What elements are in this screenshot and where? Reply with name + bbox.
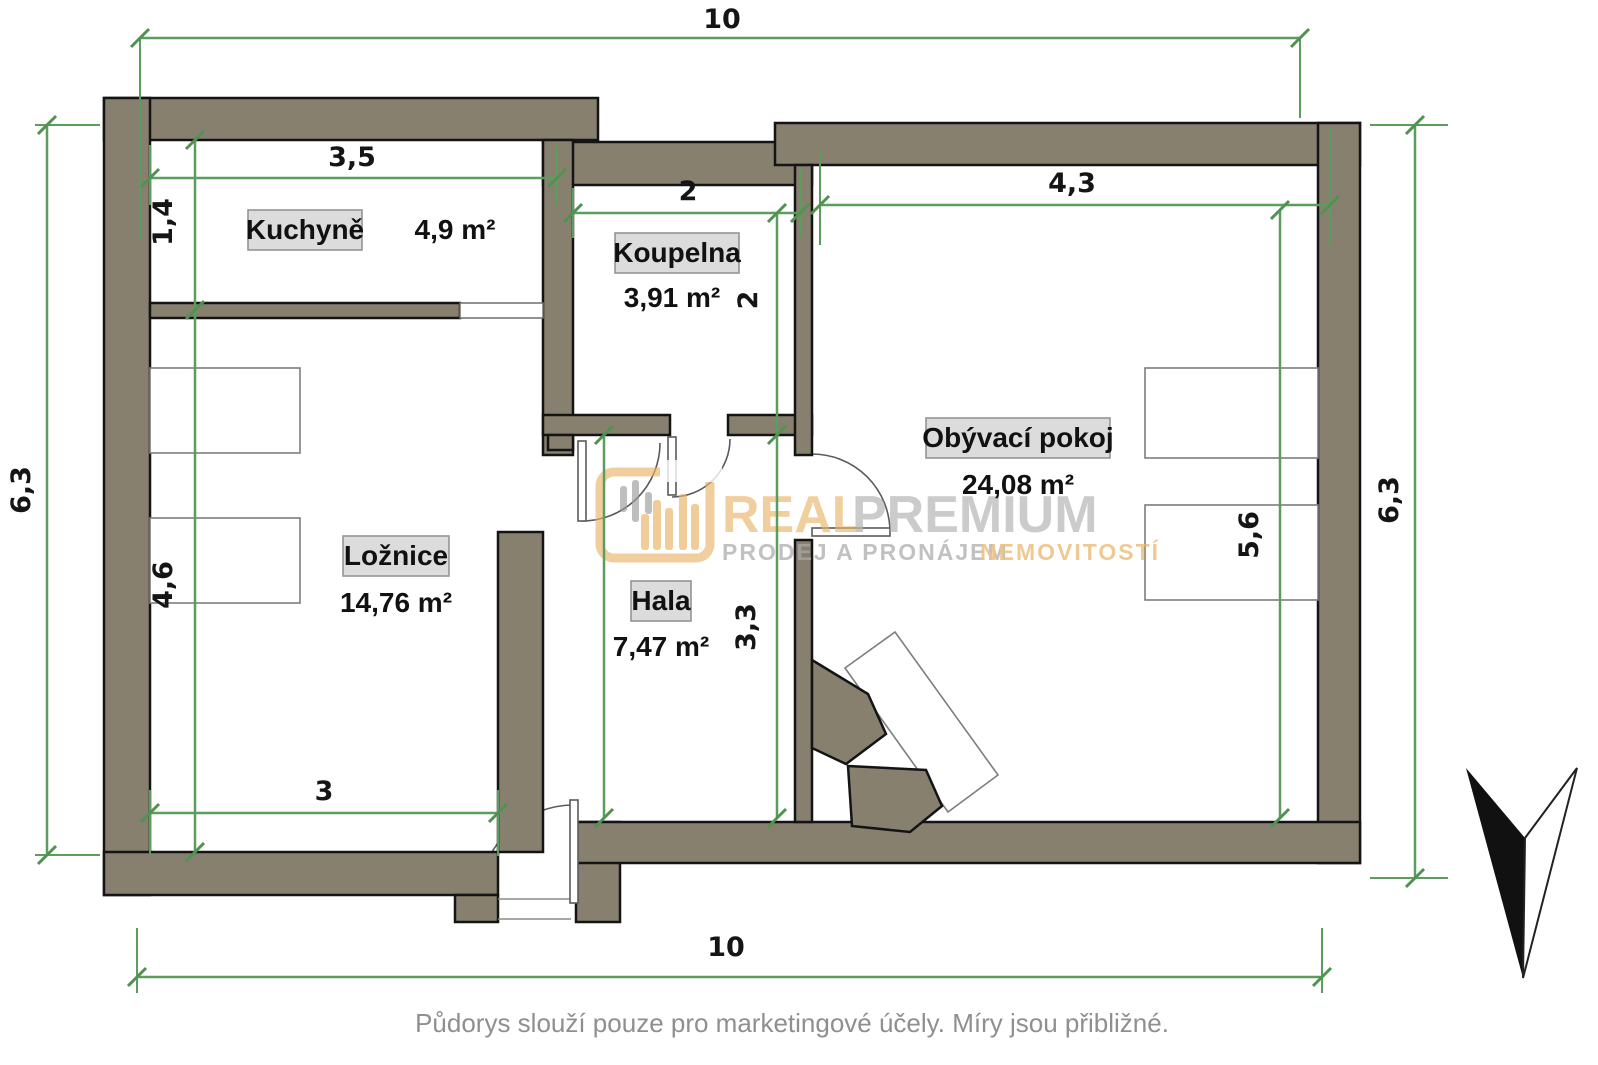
kitchen-pass-through-window (460, 303, 543, 318)
wall-top-left (104, 98, 598, 140)
wall-left (104, 98, 150, 895)
room-name-bathroom: Koupelna (613, 237, 741, 268)
logo-brand-real: REAL (722, 486, 864, 544)
dim-bathroom-depth: 2 (733, 291, 764, 310)
wall-top-middle (543, 142, 812, 185)
living-room-furniture-2 (1145, 505, 1318, 600)
room-name-bedroom: Ložnice (344, 540, 448, 571)
logo-tagline-left: PRODEJ A PRONÁJEM (722, 538, 1009, 565)
dim-bottom-width: 10 (707, 932, 745, 963)
north-arrow-dark-half (1466, 768, 1525, 978)
living-room-furniture-1 (1145, 368, 1318, 458)
floorplan-drawing: REAL PREMIUM PRODEJ A PRONÁJEM NEMOVITOS… (0, 0, 1598, 1065)
wall-bedroom-hall-stub (548, 435, 573, 450)
dim-bedroom-width: 3 (315, 776, 334, 807)
dim-kitchen-depth: 1,4 (148, 198, 179, 246)
entrance-door-leaf (570, 800, 578, 903)
dim-kitchen-width: 3,5 (328, 142, 376, 173)
bedroom-bed-1 (150, 368, 300, 453)
wall-top-right (775, 123, 1360, 165)
dim-bathroom-width: 2 (679, 176, 698, 207)
realpremium-logo: REAL PREMIUM PRODEJ A PRONÁJEM NEMOVITOS… (600, 460, 1160, 565)
room-area-bathroom: 3,91 m² (624, 282, 721, 313)
dim-bedroom-depth: 4,6 (148, 561, 179, 609)
dim-living-depth: 5,6 (1234, 511, 1265, 559)
room-area-hall: 7,47 m² (613, 631, 710, 662)
wall-bottom-right (576, 822, 1360, 863)
dim-hall-depth: 3,3 (731, 603, 762, 651)
dim-left-height: 6,3 (6, 466, 37, 514)
north-arrow-light-half (1523, 768, 1577, 978)
room-area-kitchen: 4,9 m² (415, 214, 496, 245)
wall-bottom-left (104, 852, 498, 895)
footer-disclaimer: Půdorys slouží pouze pro marketingové úč… (415, 1008, 1169, 1038)
room-area-bedroom: 14,76 m² (340, 587, 452, 618)
wall-hall-living-lower (795, 540, 812, 822)
logo-tagline-right: NEMOVITOSTÍ (980, 538, 1160, 565)
dim-top-width: 10 (703, 4, 741, 35)
room-name-hall: Hala (631, 585, 691, 616)
room-name-kitchen: Kuchyně (246, 214, 364, 245)
bedroom-door-leaf (578, 441, 586, 521)
room-area-living: 24,08 m² (962, 469, 1074, 500)
wall-right (1318, 123, 1360, 863)
north-arrow (1466, 768, 1577, 978)
dim-right-height: 6,3 (1374, 476, 1405, 524)
dim-living-width: 4,3 (1048, 168, 1096, 199)
room-labels: Kuchyně 4,9 m² Koupelna 3,91 m² Ložnice … (246, 210, 1114, 662)
furniture (150, 368, 1318, 832)
floorplan-page: REAL PREMIUM PRODEJ A PRONÁJEM NEMOVITOS… (0, 0, 1598, 1065)
realpremium-logo-icon (600, 460, 722, 558)
room-name-living: Obývací pokoj (922, 422, 1113, 453)
entrance-jamb-left (455, 895, 498, 922)
wall-bedroom-hall (498, 532, 543, 852)
